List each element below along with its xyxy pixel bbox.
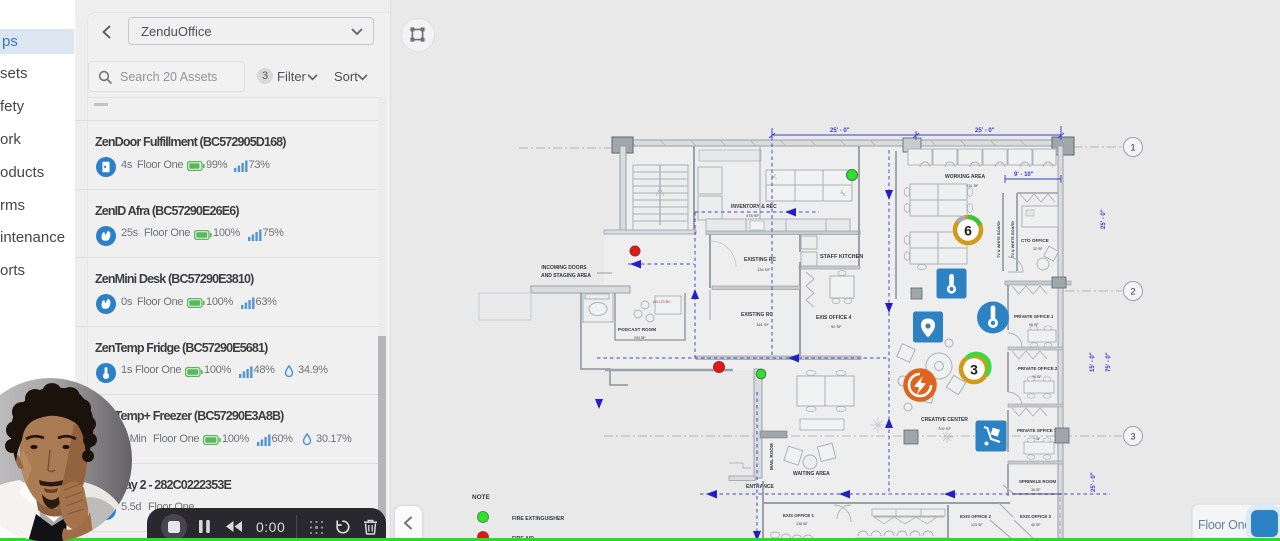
svg-text:32 SF: 32 SF (1033, 247, 1043, 251)
svg-text:NOTE: NOTE (472, 494, 490, 501)
svg-text:ENTRANCE: ENTRANCE (746, 484, 774, 490)
svg-text:TV & WHITE BOARD: TV & WHITE BOARD (997, 221, 1001, 258)
svg-text:SPRINKLE ROOM: SPRINKLE ROOM (1019, 479, 1056, 484)
svg-text:2: 2 (1130, 287, 1135, 297)
svg-text:PRIVATE OFFICE 1: PRIVATE OFFICE 1 (1014, 314, 1054, 319)
svg-text:EXIS OFFICE 4: EXIS OFFICE 4 (816, 315, 852, 321)
svg-text:PRIVATE OFFICE 3: PRIVATE OFFICE 3 (1017, 428, 1057, 433)
svg-text:6: 6 (964, 223, 972, 239)
svg-text:WAITING AREA: WAITING AREA (793, 471, 830, 477)
svg-text:INVENTORY & REC: INVENTORY & REC (731, 204, 777, 210)
svg-text:EXISTING RC: EXISTING RC (741, 312, 773, 318)
svg-text:FIRE EXTINGUISHER: FIRE EXTINGUISHER (512, 516, 564, 522)
svg-text:702 SF: 702 SF (938, 426, 951, 431)
svg-text:40 SF: 40 SF (1031, 523, 1041, 527)
svg-text:CREATIVE CENTER: CREATIVE CENTER (921, 417, 968, 423)
svg-text:25' - 0": 25' - 0" (1101, 209, 1107, 229)
svg-text:25' - 0": 25' - 0" (1091, 472, 1097, 492)
svg-text:9' - 10": 9' - 10" (1014, 172, 1034, 178)
svg-text:WORKING AREA: WORKING AREA (945, 174, 985, 180)
svg-text:EXIS OFFICE 1: EXIS OFFICE 1 (783, 513, 815, 518)
svg-text:EXIS OFFICE 3: EXIS OFFICE 3 (1020, 514, 1052, 519)
svg-text:92 SF: 92 SF (831, 324, 842, 329)
svg-text:3: 3 (1130, 432, 1135, 442)
svg-text:STAFF KITCHEN: STAFF KITCHEN (820, 254, 863, 260)
svg-text:3: 3 (970, 362, 978, 378)
svg-text:15' - 0": 15' - 0" (1090, 352, 1096, 372)
svg-text:AB 123 BC: AB 123 BC (653, 300, 671, 304)
svg-text:25' - 0": 25' - 0" (830, 128, 850, 134)
svg-text:1: 1 (1130, 143, 1135, 153)
svg-text:EXIS OFFICE 2: EXIS OFFICE 2 (960, 514, 992, 519)
svg-text:PRIVATE OFFICE 2: PRIVATE OFFICE 2 (1018, 366, 1058, 371)
svg-text:138 SF: 138 SF (796, 522, 808, 526)
svg-text:134 SF: 134 SF (757, 267, 770, 272)
svg-text:INCOMING DOORS: INCOMING DOORS (541, 265, 587, 271)
svg-text:EXISTING RC: EXISTING RC (744, 257, 776, 263)
svg-text:36 SF: 36 SF (1031, 488, 1041, 492)
svg-text:123 SF: 123 SF (971, 523, 983, 527)
svg-text:CTO OFFICE: CTO OFFICE (1021, 238, 1049, 243)
svg-text:MAIL ROOM: MAIL ROOM (769, 443, 774, 470)
svg-text:TV & WHITE BOARD: TV & WHITE BOARD (1011, 221, 1015, 258)
svg-text:161 SF: 161 SF (756, 322, 769, 327)
svg-text:AND STAGING AREA: AND STAGING AREA (541, 273, 591, 279)
svg-text:75' - 0": 75' - 0" (1106, 352, 1112, 372)
svg-text:478 SF: 478 SF (746, 213, 759, 218)
svg-text:ON SF: ON SF (634, 336, 646, 340)
svg-text:811 SF: 811 SF (966, 183, 979, 188)
svg-text:25' - 0": 25' - 0" (975, 128, 995, 134)
svg-text:PODCAST ROOM: PODCAST ROOM (618, 327, 656, 332)
